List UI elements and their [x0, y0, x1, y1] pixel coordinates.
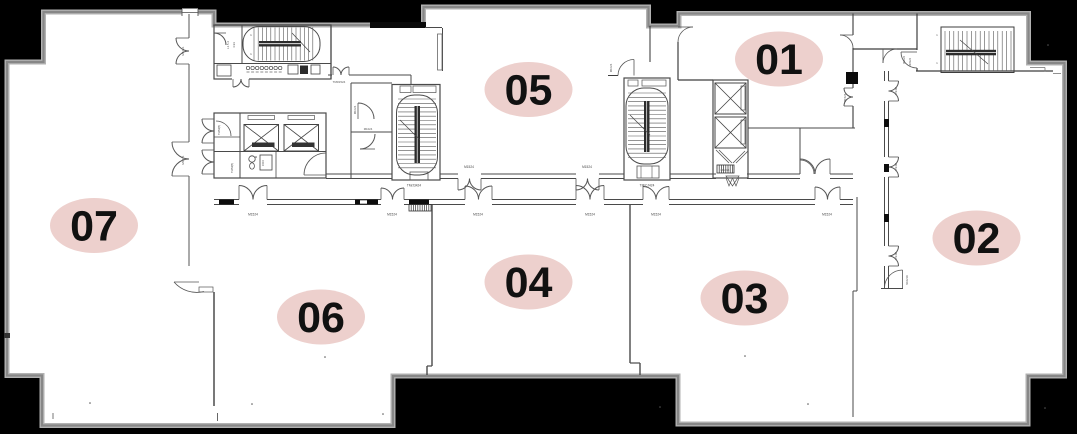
svg-text:M1024: M1024: [902, 55, 906, 63]
svg-text:05: 05: [505, 67, 553, 115]
svg-text:TM#1524: TM#1524: [333, 80, 346, 84]
svg-text:M1524: M1524: [464, 165, 474, 169]
svg-text:TM/M(B): TM/M(B): [217, 125, 221, 135]
svg-text:02: 02: [953, 215, 1001, 263]
svg-text:M1524: M1524: [248, 213, 258, 217]
svg-text:M1524: M1524: [894, 87, 898, 96]
svg-text:M1524: M1524: [585, 213, 595, 217]
svg-text:M1021: M1021: [181, 155, 185, 165]
svg-text:M1524: M1524: [894, 252, 898, 261]
svg-text:07: 07: [70, 203, 118, 251]
svg-text:06: 06: [297, 294, 345, 342]
svg-text:M1524: M1524: [894, 163, 898, 172]
svg-text:TM/J3424: TM/J3424: [407, 184, 421, 188]
svg-text:M1524: M1524: [582, 165, 592, 169]
svg-text:04: 04: [505, 259, 553, 307]
svg-text:M1024: M1024: [353, 105, 357, 114]
svg-text:01: 01: [755, 36, 803, 84]
svg-text:M1524: M1524: [822, 213, 832, 217]
svg-text:M1524: M1524: [387, 213, 397, 217]
svg-text:M0924: M0924: [908, 57, 912, 65]
svg-text:03: 03: [721, 275, 769, 323]
svg-text:L1.5-4: L1.5-4: [226, 41, 230, 49]
svg-text:M1024: M1024: [364, 127, 373, 131]
svg-text:M1021R: M1021R: [905, 275, 909, 285]
svg-text:190R: 190R: [262, 160, 265, 166]
svg-text:TM/CJ424: TM/CJ424: [640, 184, 655, 188]
svg-text:4.93: 4.93: [232, 42, 236, 48]
svg-text:TM/M(B): TM/M(B): [230, 163, 234, 173]
svg-text:M1524: M1524: [843, 93, 847, 102]
svg-text:M1524: M1524: [651, 213, 661, 217]
svg-text:M1524: M1524: [473, 213, 483, 217]
svg-text:M1021: M1021: [181, 46, 185, 56]
svg-text:M1024: M1024: [609, 63, 613, 72]
svg-text:M#d224: M#d224: [721, 169, 730, 172]
